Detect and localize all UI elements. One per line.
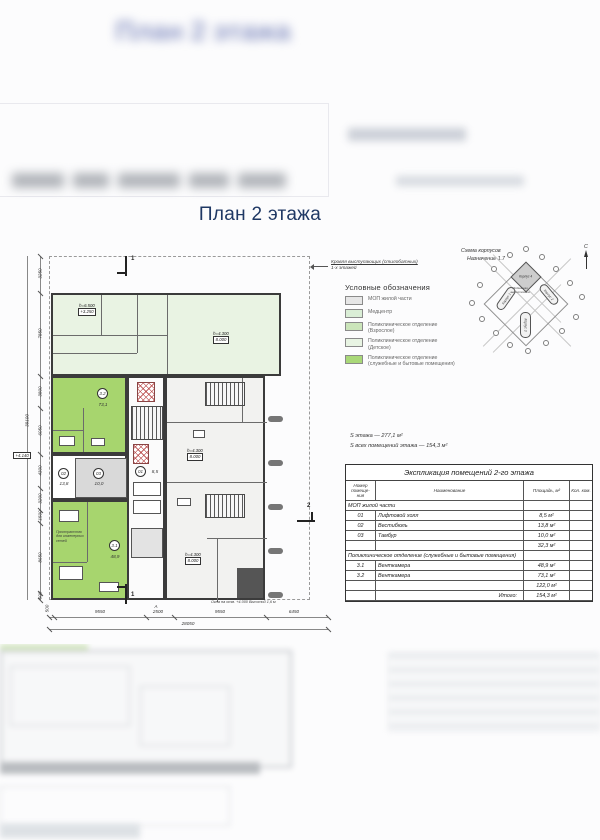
section-mark-flag <box>117 272 127 274</box>
summary-line2: S всех помещений этажа — 154,3 м² <box>350 443 447 449</box>
dimension-label: 1500 <box>38 503 43 529</box>
scheme-title-line1: Схема корпусов <box>461 248 501 254</box>
space-note: Пространство для инженерных сетей <box>56 530 86 543</box>
blurred-dark-bar <box>0 762 260 774</box>
cell-num: 3.2 <box>346 571 376 581</box>
column-pill <box>268 592 283 598</box>
stair-hatch <box>131 406 163 440</box>
legend-item: Поликлиническое отделение (служебные и б… <box>345 355 463 367</box>
room-area: 8,5 <box>147 469 163 474</box>
axis-bubble <box>525 348 531 354</box>
blurred-previous-title: План 2 этажа <box>88 16 318 47</box>
blurred-text-line <box>348 128 466 141</box>
axis-bubble <box>559 328 565 334</box>
cell-num <box>346 541 376 551</box>
compass: С <box>581 244 588 269</box>
room-number-bubble: 3.1 <box>109 540 120 551</box>
elevation-mark: +4.140 <box>13 452 31 459</box>
cell-count <box>570 581 592 591</box>
wall <box>167 422 267 423</box>
section-mark-label: 2 <box>307 503 310 509</box>
cell-name <box>376 581 524 591</box>
blurred-caption-row <box>12 173 286 188</box>
dimension-label: 3250 <box>38 261 43 287</box>
wall <box>137 295 138 353</box>
col-header-count: Кол. ком. <box>570 481 592 501</box>
group-label: Поликлиническое отделение (служебные и б… <box>346 551 524 561</box>
elevator <box>133 500 161 514</box>
table-group-row: Поликлиническое отделение (служебные и б… <box>346 551 592 561</box>
explication-table: Экспликация помещений 2-го этажа Номер п… <box>345 464 593 602</box>
cell-area: 122,0 м² <box>524 581 570 591</box>
section-mark-flag <box>117 586 127 588</box>
axis-bubble <box>539 254 545 260</box>
room-area: 73,1 <box>93 402 113 407</box>
dimension-line <box>49 617 328 618</box>
wall <box>53 353 137 354</box>
legend-swatch <box>345 338 363 347</box>
room-area: 48,9 <box>105 554 125 559</box>
core-block: 01 8,5 <box>127 376 165 600</box>
dimension-label: 6450 <box>279 609 309 614</box>
dimension-label: 9550 <box>85 609 115 614</box>
dimension-label: 500 <box>45 601 50 617</box>
table-header-row: Номер помеще- ния Наименование Площадь, … <box>346 481 592 501</box>
column-pill <box>268 416 283 422</box>
axis-bubble <box>491 266 497 272</box>
legend-swatch <box>345 355 363 364</box>
room-number-bubble: 3.2 <box>97 388 108 399</box>
cell-name <box>376 541 524 551</box>
axis-bubble <box>523 246 529 252</box>
col-header-name: Наименование <box>376 481 524 501</box>
elevation-mark: +3.250 <box>78 308 96 315</box>
dimension-label: 9550 <box>205 609 235 614</box>
axis-label: А <box>151 604 161 609</box>
section-mark-flag <box>311 512 313 522</box>
wall <box>53 562 87 563</box>
equipment-box <box>59 510 79 522</box>
stair-hatch <box>205 494 245 518</box>
cell-num <box>346 581 376 591</box>
equipment-box <box>59 436 75 446</box>
wall <box>87 502 88 562</box>
cell-count <box>570 531 592 541</box>
cell-count <box>570 551 592 561</box>
dimension-line <box>49 629 328 630</box>
dimension-label: 8650 <box>38 545 43 571</box>
dimension-label: 500 <box>38 583 43 609</box>
room-gray <box>131 528 163 558</box>
table-total-row: Итого: 154,3 м² <box>346 591 592 601</box>
wall <box>207 538 267 539</box>
cell-area <box>524 501 570 511</box>
blurred-word <box>189 173 229 188</box>
vent-shaft-hatch <box>137 382 155 402</box>
dimension-label: 2500 <box>144 609 172 614</box>
wall <box>53 335 167 336</box>
table-group-row: МОП жилой части <box>346 501 592 511</box>
cell-num: 3.1 <box>346 561 376 571</box>
dimension-label: 6050 <box>38 418 43 444</box>
equipment-box <box>91 438 105 446</box>
cell-num: 02 <box>346 521 376 531</box>
room-ventkamera-3-2: 3.2 73,1 <box>51 376 127 454</box>
room-number-bubble: 02 <box>58 468 69 479</box>
cell-area: 8,5 м² <box>524 511 570 521</box>
cell-name: Лифтовой холл <box>376 511 524 521</box>
legend-label: Поликлиническое отделение (Детское) <box>368 338 460 350</box>
blurred-word <box>118 173 180 188</box>
blurred-plan-room <box>10 666 130 726</box>
scheme-corpus-3: Корпус 3 <box>520 312 531 338</box>
wall <box>53 430 83 431</box>
room-area: 13,8 <box>55 481 73 486</box>
stair-hatch <box>205 382 245 406</box>
axis-bubble <box>553 266 559 272</box>
elevation-mark: 8.000 <box>185 557 201 564</box>
equipment-box <box>99 582 119 592</box>
legend-label: Медцентр <box>368 309 460 315</box>
blurred-table-preview <box>388 652 600 732</box>
axis-bubble <box>477 282 483 288</box>
building-scheme: Схема корпусов Назначение 1.7 С Корпус 4… <box>455 244 600 362</box>
window-note: Окна на отм. +4.000 Высотой 1,6 м <box>211 600 277 605</box>
blurred-plan-preview <box>0 644 300 834</box>
vent-shaft-hatch <box>133 444 149 464</box>
axis-bubble <box>493 330 499 336</box>
section-mark-label: 1 <box>131 592 134 598</box>
table-row: 03 Тамбур 10,0 м² <box>346 531 592 541</box>
axis-bubble <box>507 342 513 348</box>
column-pill <box>268 548 283 554</box>
axis-bubble <box>567 280 573 286</box>
legend-label: МОП жилой части <box>368 296 460 302</box>
floor-plan: h=6.500 +3.250 h=4.300 8.000 3.2 73,1 02… <box>15 248 345 648</box>
cell-num: 01 <box>346 511 376 521</box>
compass-needle <box>586 257 587 269</box>
level-label: h=4.300 8.000 <box>201 331 241 344</box>
section-mark-label: 1 <box>131 256 134 262</box>
dimension-total-label: 39100 <box>25 408 30 434</box>
dimension-total-label: 28050 <box>168 621 208 626</box>
compass-label: С <box>584 244 588 250</box>
legend-swatch <box>345 296 363 305</box>
cell-name: Тамбур <box>376 531 524 541</box>
cell-area: 73,1 м² <box>524 571 570 581</box>
room-band-top: h=6.500 +3.250 h=4.300 8.000 <box>51 293 281 376</box>
blurred-plan-room <box>140 686 230 746</box>
legend-label: Поликлиническое отделение (служебные и б… <box>368 355 460 367</box>
cell-num: 03 <box>346 531 376 541</box>
axis-bubble <box>507 252 513 258</box>
cell-area: 10,0 м² <box>524 531 570 541</box>
axis-bubble <box>579 294 585 300</box>
blurred-word <box>12 173 64 188</box>
level-label: h=6.500 +3.250 <box>69 303 105 316</box>
elevation-tag: +4.140 <box>13 452 31 459</box>
room-lobby-block: 02 13,8 03 10,0 <box>51 454 127 500</box>
room-dark <box>237 568 263 598</box>
table-row: 01 Лифтовой холл 8,5 м² <box>346 511 592 521</box>
blurred-word <box>73 173 109 188</box>
legend-item: Медцентр <box>345 309 463 318</box>
wall <box>83 408 84 452</box>
cell-name: Венткамера <box>376 561 524 571</box>
cell-count <box>570 511 592 521</box>
room-area: 10,0 <box>90 481 108 486</box>
column-pill <box>268 504 283 510</box>
scheme-center-label: Подземная автостоянка <box>503 286 537 294</box>
compass-arrow-icon <box>584 250 588 257</box>
cell-area: 154,3 м² <box>524 591 570 601</box>
table-row: 02 Вестибюль 13,8 м² <box>346 521 592 531</box>
legend-title: Условные обозначения <box>345 283 463 292</box>
legend-swatch <box>345 322 363 331</box>
page-title: План 2 этажа <box>0 204 520 226</box>
roof-note-line2: 1-х этажей <box>331 266 461 272</box>
table-row: 3.2 Венткамера 73,1 м² <box>346 571 592 581</box>
elevator <box>133 482 161 496</box>
cell-area: 32,3 м² <box>524 541 570 551</box>
legend-item: Поликлиническое отделение (Детское) <box>345 338 463 350</box>
equipment-box <box>177 498 191 506</box>
table-subtotal-row: 32,3 м² <box>346 541 592 551</box>
cell-area: 48,9 м² <box>524 561 570 571</box>
blurred-next-page <box>0 644 600 840</box>
cell-name: Итого: <box>376 591 524 601</box>
col-header-area: Площадь, м² <box>524 481 570 501</box>
table-title: Экспликация помещений 2-го этажа <box>346 465 592 481</box>
axis-bubble <box>469 300 475 306</box>
group-label: МОП жилой части <box>346 501 524 511</box>
corpus-label: Корпус 4 <box>519 275 532 279</box>
level-label: h=4.300 8.000 <box>173 552 213 565</box>
cell-num <box>346 591 376 601</box>
room-number-bubble: 03 <box>93 468 104 479</box>
legend-label: Поликлиническое отделение (Взрослое) <box>368 322 460 334</box>
col-header-num: Номер помеще- ния <box>346 481 376 501</box>
blurred-strip <box>0 824 140 838</box>
legend-item: МОП жилой части <box>345 296 463 305</box>
cell-count <box>570 571 592 581</box>
summary-line1: S этажа — 277,1 м² <box>350 433 447 439</box>
floor-summary: S этажа — 277,1 м² S всех помещений этаж… <box>350 433 447 453</box>
cell-count <box>570 521 592 531</box>
room-ventkamera-3-1: Пространство для инженерных сетей 3.1 48… <box>51 500 135 600</box>
residential-block: h=4.300 8.000 h=4.300 8.000 <box>165 376 265 600</box>
column-pill <box>268 460 283 466</box>
table-row: 3.1 Венткамера 48,9 м² <box>346 561 592 571</box>
blurred-word <box>238 173 286 188</box>
axis-bubble <box>543 340 549 346</box>
elevation-mark: 8.000 <box>213 336 229 343</box>
cell-count <box>570 501 592 511</box>
level-label: h=4.300 8.000 <box>175 448 215 461</box>
cell-name: Венткамера <box>376 571 524 581</box>
dimension-label: 4300 <box>38 458 43 484</box>
room-number-bubble: 01 <box>135 466 146 477</box>
legend-swatch <box>345 309 363 318</box>
elevation-mark: 8.000 <box>187 453 203 460</box>
equipment-box <box>59 566 83 580</box>
equipment-box <box>193 430 205 438</box>
cell-area <box>524 551 570 561</box>
cell-count <box>570 591 592 601</box>
wall <box>217 538 218 602</box>
wall <box>167 295 168 374</box>
table-subtotal-row: 122,0 м² <box>346 581 592 591</box>
corpus-label: Корпус 3 <box>524 318 528 331</box>
axis-bubble <box>479 316 485 322</box>
dimension-label: 7850 <box>38 321 43 347</box>
blurred-plan-room <box>0 786 230 826</box>
wall <box>167 482 267 483</box>
cell-count <box>570 561 592 571</box>
legend-item: Поликлиническое отделение (Взрослое) <box>345 322 463 334</box>
cell-name: Вестибюль <box>376 521 524 531</box>
axis-bubble <box>573 314 579 320</box>
cell-area: 13,8 м² <box>524 521 570 531</box>
legend: Условные обозначения МОП жилой части Мед… <box>345 283 463 367</box>
document-page: План 2 этажа План 2 этажа Кровля выступа… <box>0 0 600 840</box>
dimension-label: 3800 <box>38 379 43 405</box>
blurred-text-line <box>396 176 524 186</box>
cell-count <box>570 541 592 551</box>
